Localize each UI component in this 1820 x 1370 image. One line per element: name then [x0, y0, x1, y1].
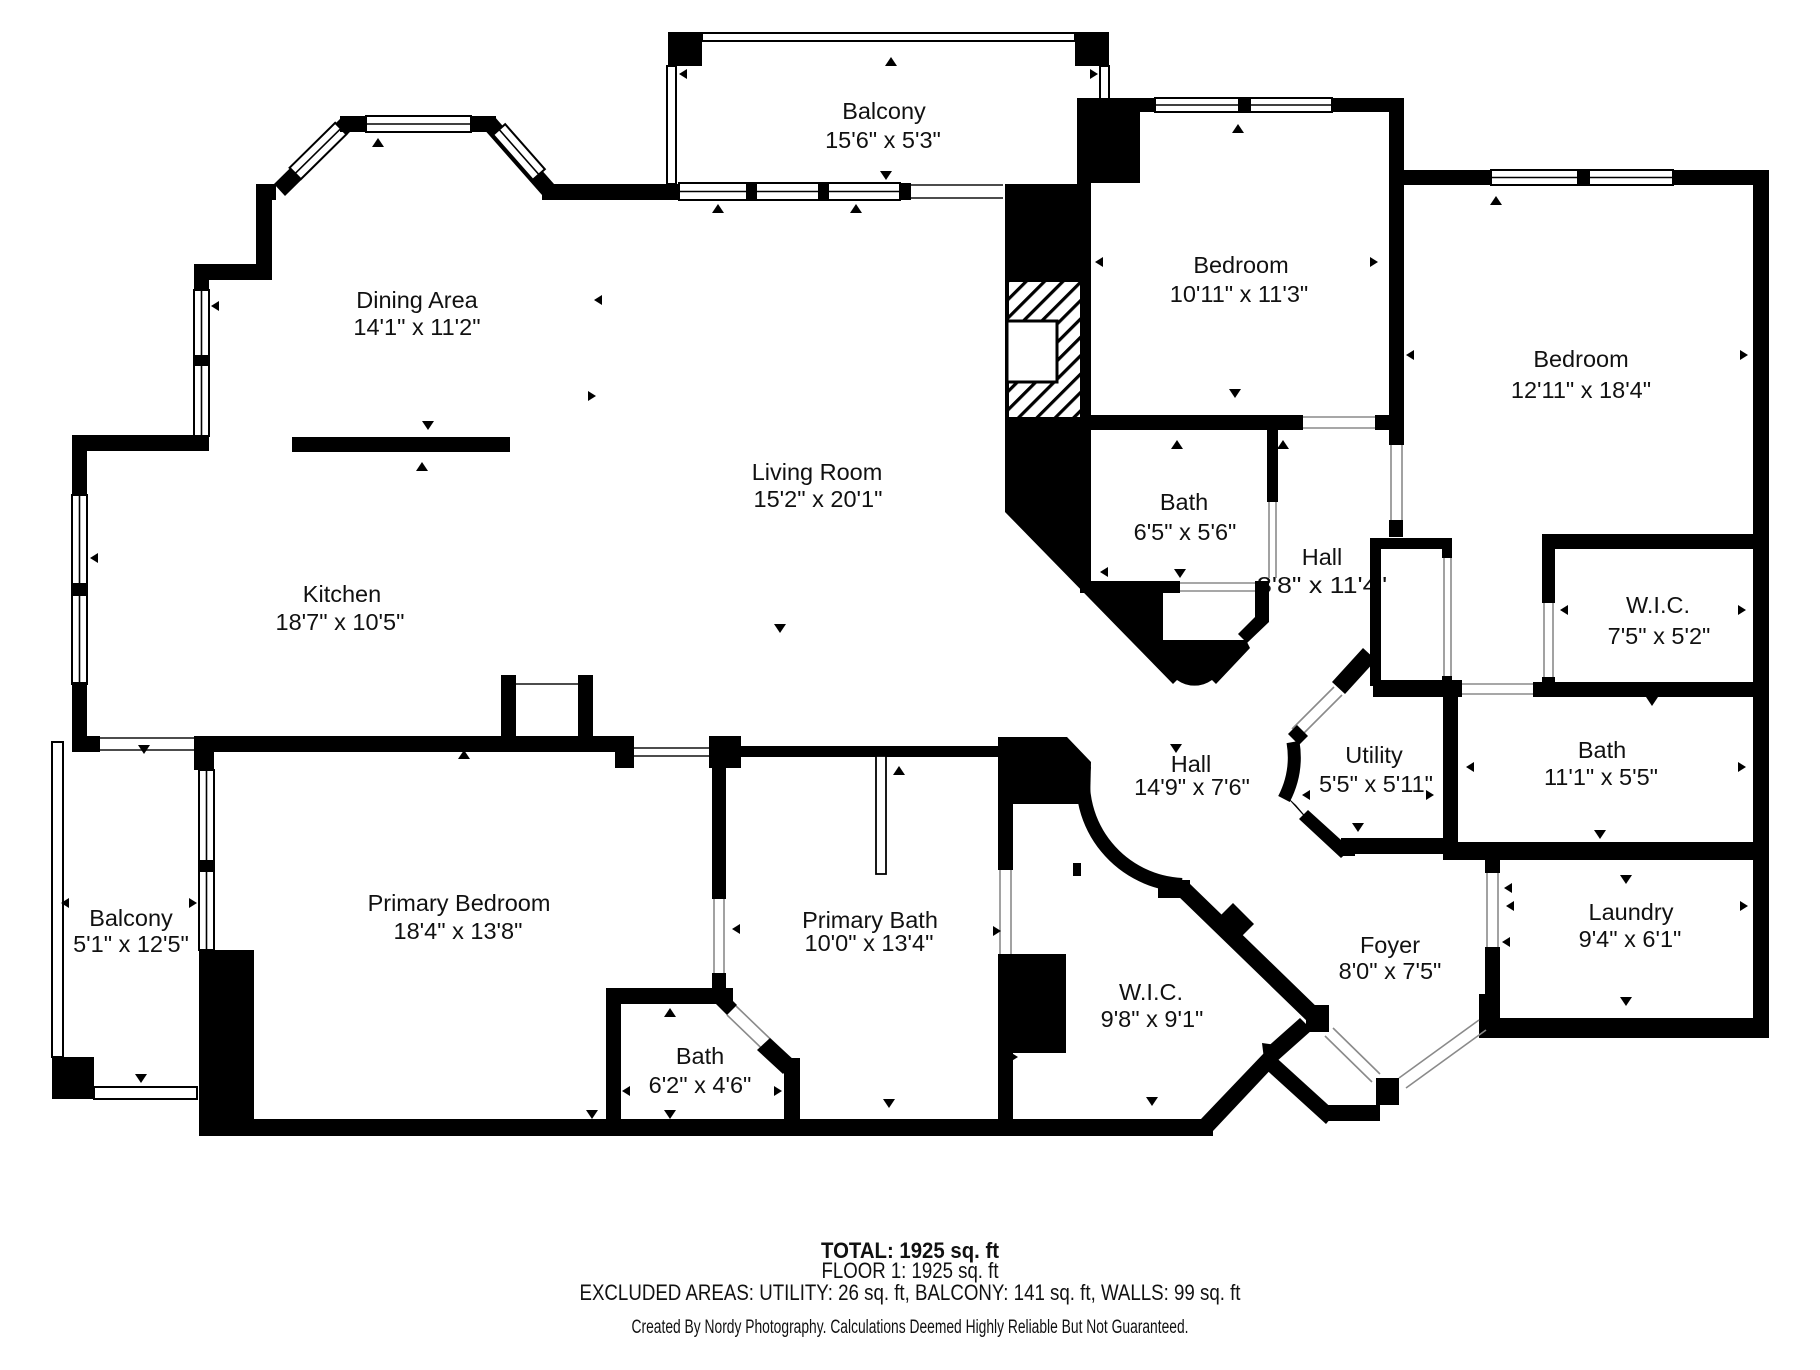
svg-text:Utility: Utility	[1345, 742, 1403, 768]
svg-text:18'7" x 10'5": 18'7" x 10'5"	[276, 609, 405, 635]
svg-text:18'4" x 13'8": 18'4" x 13'8"	[394, 918, 523, 944]
svg-text:10'11" x 11'3": 10'11" x 11'3"	[1170, 281, 1308, 307]
svg-text:W.I.C.: W.I.C.	[1626, 592, 1690, 618]
svg-text:EXCLUDED AREAS: UTILITY: 26 sq: EXCLUDED AREAS: UTILITY: 26 sq. ft, BALC…	[580, 1280, 1241, 1305]
svg-text:Bedroom: Bedroom	[1193, 252, 1288, 278]
svg-text:11'1" x 5'5": 11'1" x 5'5"	[1544, 764, 1658, 790]
svg-text:Balcony: Balcony	[842, 98, 926, 124]
svg-text:Bedroom: Bedroom	[1533, 346, 1628, 372]
svg-text:Dining Area: Dining Area	[356, 287, 478, 313]
svg-text:9'8" x 9'1": 9'8" x 9'1"	[1101, 1006, 1204, 1032]
svg-text:Foyer: Foyer	[1360, 932, 1420, 958]
svg-text:6'5" x 5'6": 6'5" x 5'6"	[1134, 519, 1237, 545]
svg-text:Laundry: Laundry	[1589, 899, 1674, 925]
svg-text:5'5" x 5'11": 5'5" x 5'11"	[1319, 771, 1433, 797]
svg-text:Primary Bedroom: Primary Bedroom	[368, 890, 551, 916]
svg-text:15'6" x 5'3": 15'6" x 5'3"	[825, 127, 941, 153]
svg-text:Created By Nordy Photography.: Created By Nordy Photography. Calculatio…	[632, 1317, 1189, 1338]
svg-text:9'4" x 6'1": 9'4" x 6'1"	[1579, 926, 1682, 952]
svg-text:W.I.C.: W.I.C.	[1119, 979, 1183, 1005]
svg-text:10'0" x 13'4": 10'0" x 13'4"	[805, 930, 934, 956]
svg-text:6'2" x 4'6": 6'2" x 4'6"	[649, 1072, 752, 1098]
svg-text:14'1" x 11'2": 14'1" x 11'2"	[353, 314, 480, 340]
svg-text:12'11" x 18'4": 12'11" x 18'4"	[1511, 377, 1651, 403]
svg-text:8'0" x 7'5": 8'0" x 7'5"	[1339, 958, 1442, 984]
svg-text:14'9" x 7'6": 14'9" x 7'6"	[1134, 774, 1250, 800]
svg-text:7'5" x 5'2": 7'5" x 5'2"	[1608, 623, 1711, 649]
svg-text:Kitchen: Kitchen	[303, 581, 381, 607]
svg-text:Bath: Bath	[1160, 489, 1208, 515]
svg-text:Hall: Hall	[1302, 544, 1342, 570]
svg-text:5'1" x 12'5": 5'1" x 12'5"	[73, 931, 189, 957]
svg-text:15'2" x 20'1": 15'2" x 20'1"	[754, 486, 883, 512]
svg-text:Bath: Bath	[1578, 737, 1626, 763]
svg-text:Balcony: Balcony	[89, 905, 173, 931]
svg-text:Living Room: Living Room	[752, 459, 883, 485]
svg-text:Bath: Bath	[676, 1043, 724, 1069]
